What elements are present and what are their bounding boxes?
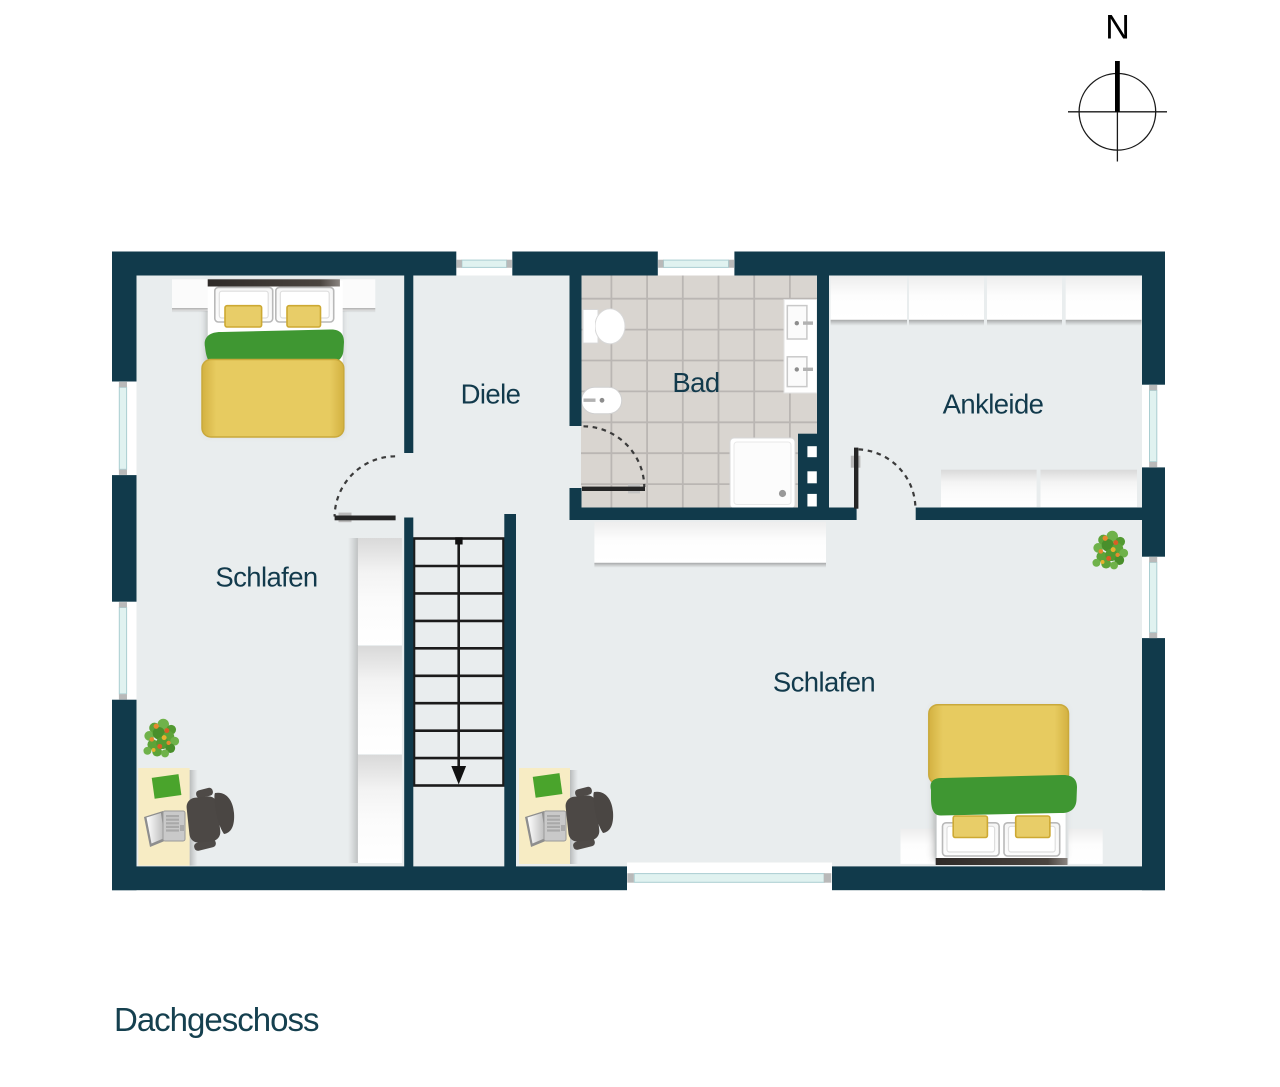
svg-text:Bad: Bad xyxy=(672,367,719,398)
svg-text:Schlafen: Schlafen xyxy=(215,562,317,593)
svg-text:Ankleide: Ankleide xyxy=(943,389,1044,420)
svg-text:Schlafen: Schlafen xyxy=(773,667,875,698)
svg-text:Diele: Diele xyxy=(461,379,521,410)
svg-text:Dachgeschoss: Dachgeschoss xyxy=(114,1001,319,1038)
svg-text:N: N xyxy=(1105,9,1130,47)
